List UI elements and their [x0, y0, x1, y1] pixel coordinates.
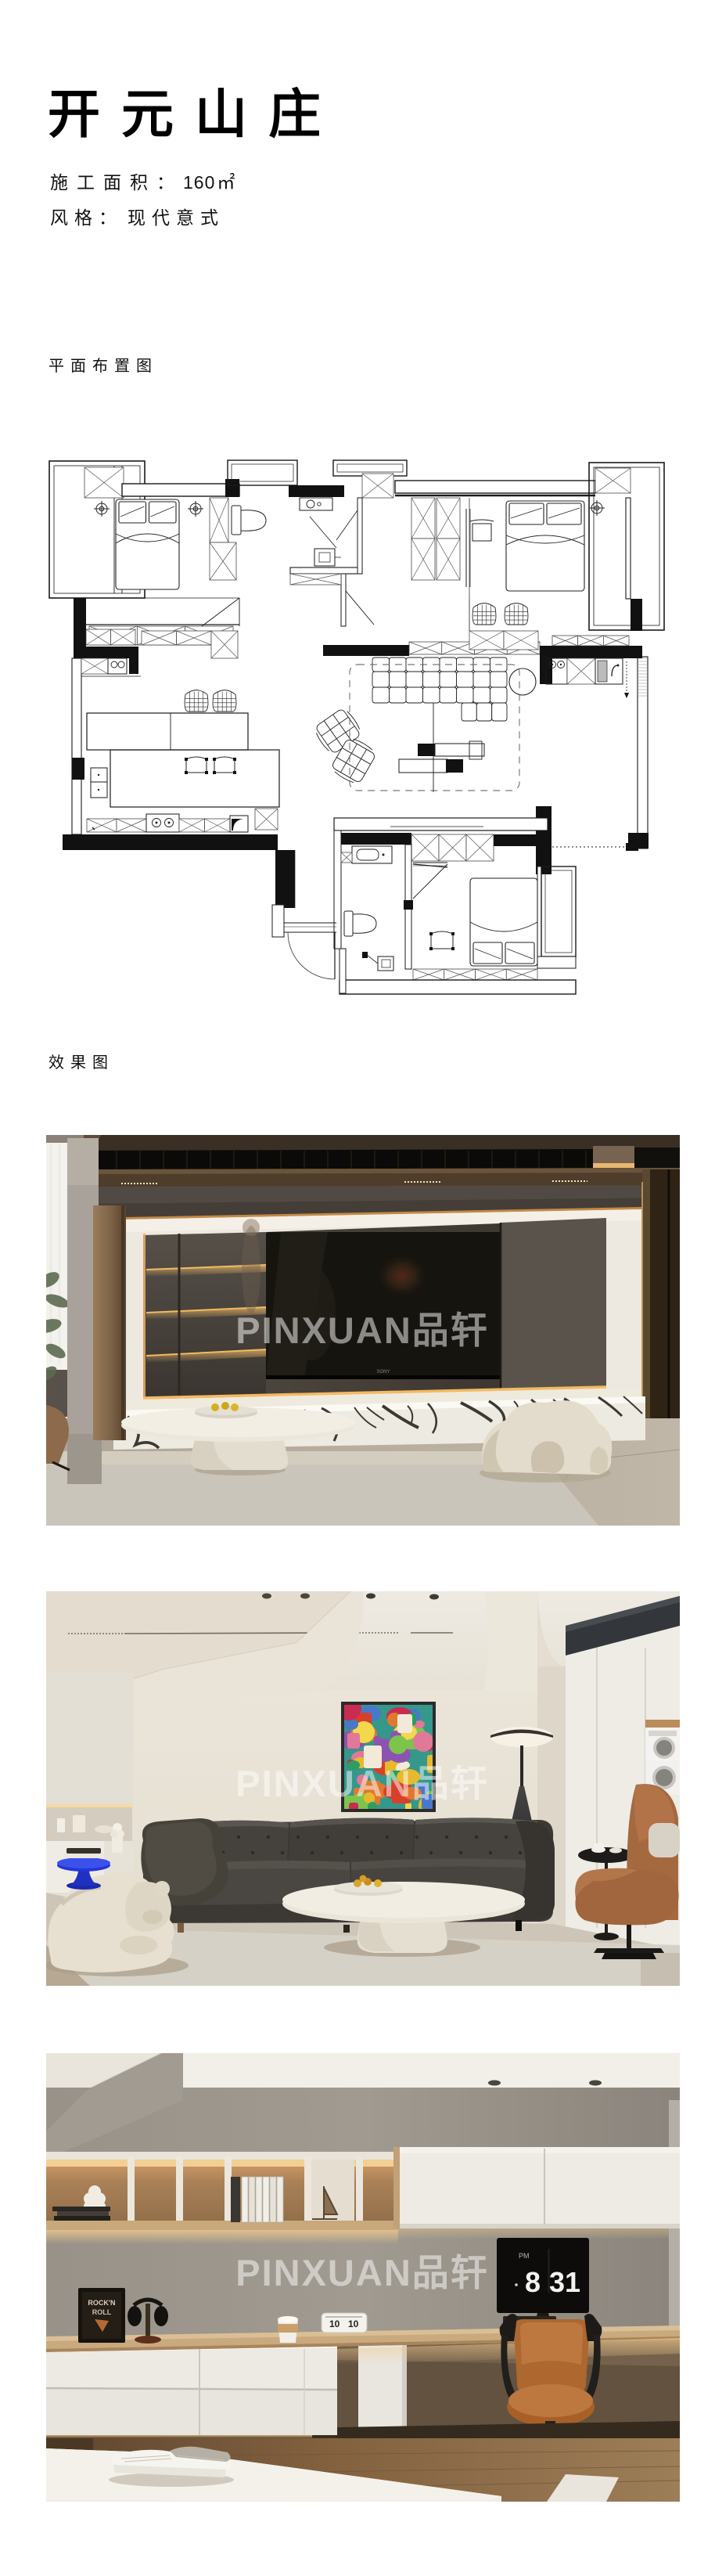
svg-text:PINXUAN品轩: PINXUAN品轩	[235, 1310, 489, 1351]
svg-text:10: 10	[348, 2318, 359, 2329]
svg-text:31: 31	[549, 2266, 580, 2298]
svg-text:ROCK'N: ROCK'N	[88, 2299, 115, 2307]
svg-text:PINXUAN品轩: PINXUAN品轩	[235, 2252, 489, 2293]
svg-text:10: 10	[329, 2318, 340, 2329]
svg-text:SONY: SONY	[376, 1370, 390, 1374]
svg-text:PM: PM	[519, 2252, 530, 2260]
svg-text:ROLL: ROLL	[92, 2308, 112, 2316]
svg-text:8: 8	[525, 2266, 541, 2298]
svg-text:PINXUAN品轩: PINXUAN品轩	[235, 1763, 489, 1804]
